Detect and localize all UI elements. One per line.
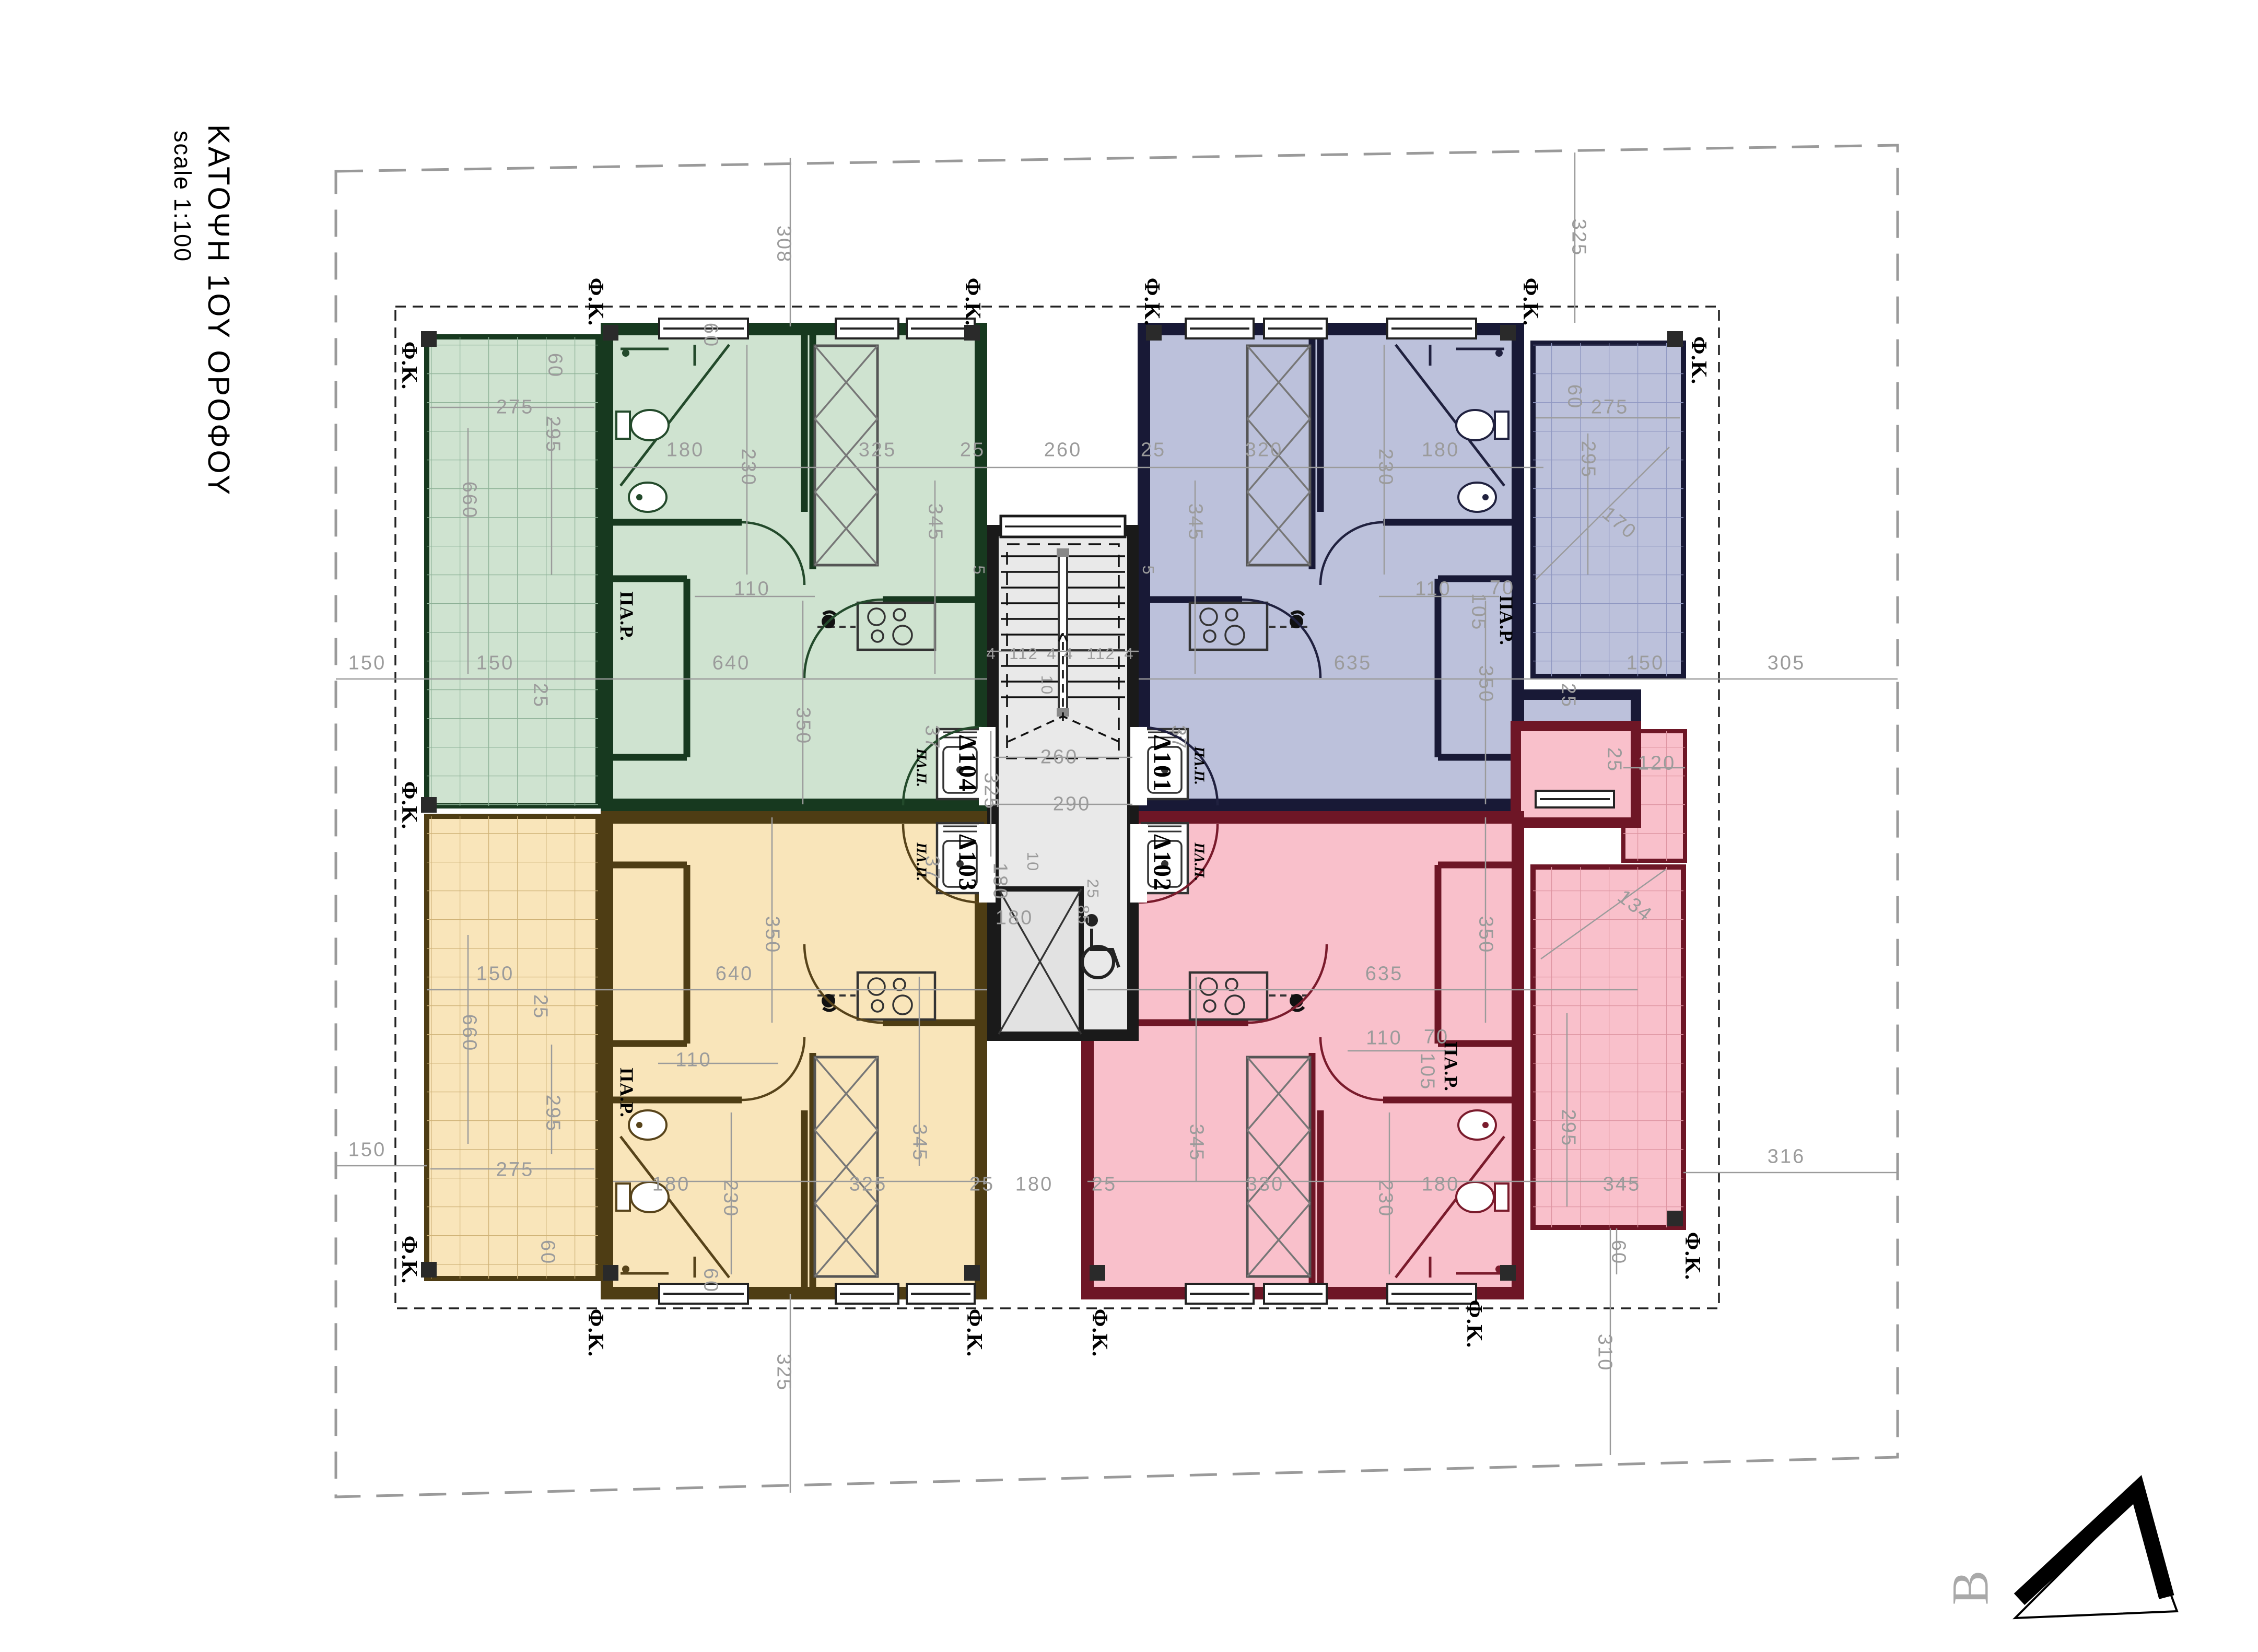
dim-label: 70 — [1490, 577, 1515, 600]
north-label: B — [1940, 1571, 2000, 1606]
apartment-label-d104: Δ104 — [953, 735, 982, 792]
dim-label: 110 — [1415, 578, 1452, 601]
dim-label: 230 — [719, 1180, 742, 1217]
dim-label: 10 — [1037, 675, 1056, 695]
dim-label: 60 — [544, 353, 566, 378]
dim-label: 25 — [1603, 747, 1625, 772]
dim-label: 25 — [529, 994, 552, 1020]
dim-label: 25 — [1141, 439, 1166, 462]
dim-label: 120 — [1638, 753, 1676, 775]
dim-label: 150 — [348, 652, 386, 675]
apartment-label-d103: Δ103 — [953, 834, 982, 892]
dim-label: 640 — [716, 963, 753, 986]
floor-plan-sheet: ΚΑΤΟΨΗ 1ΟΥ ΟΡΟΦΟΥ scale 1:100 Δ104 Δ101 … — [0, 0, 2258, 1652]
dim-label: 25 — [1092, 1174, 1117, 1196]
title-block: ΚΑΤΟΨΗ 1ΟΥ ΟΡΟΦΟΥ scale 1:100 — [169, 124, 236, 594]
dim-label: 170 — [1597, 502, 1641, 544]
dim-label: 275 — [1591, 396, 1629, 419]
dim-label: 350 — [792, 707, 814, 745]
dim-label: 150 — [476, 652, 514, 675]
dim-label: 640 — [712, 652, 750, 675]
dim-label: 260 — [1040, 746, 1078, 769]
dim-label: 5 — [1139, 565, 1157, 575]
dim-label: 5 — [969, 565, 988, 575]
dim-label: 134 — [1613, 886, 1657, 927]
dim-label: 275 — [496, 1159, 534, 1181]
dim-label: 635 — [1365, 963, 1403, 986]
dim-label: 112 — [1086, 645, 1115, 663]
apartment-label-d102: Δ102 — [1148, 834, 1177, 892]
dim-label: 105 — [1416, 1053, 1438, 1091]
fk-label: Φ.Κ. — [396, 1236, 422, 1284]
dim-label: 25 — [1557, 683, 1580, 708]
dim-label: 4 — [1124, 645, 1134, 663]
par-label: ΠΑ.Ρ. — [1495, 595, 1517, 646]
dim-label: 230 — [1374, 449, 1397, 486]
fk-label: Φ.Κ. — [960, 278, 985, 326]
dim-label: 290 — [1053, 793, 1091, 816]
plp-label: ΠΛ.Π. — [1191, 842, 1208, 881]
dim-label: 110 — [1366, 1027, 1402, 1050]
dim-label: 350 — [761, 916, 783, 954]
dim-label: 112 — [1009, 645, 1038, 663]
dim-label: 4 — [1047, 645, 1057, 663]
dim-label: 260 — [1044, 439, 1082, 462]
dim-label: 4 — [1063, 645, 1073, 663]
fk-label: Φ.Κ. — [396, 342, 422, 390]
dim-label: 660 — [458, 482, 481, 519]
dim-label: 180 — [1422, 1174, 1459, 1196]
par-label: ΠΑ.Ρ. — [1440, 1041, 1462, 1092]
page-title: ΚΑΤΟΨΗ 1ΟΥ ΟΡΟΦΟΥ — [201, 124, 236, 594]
dim-label: 70 — [1424, 1026, 1449, 1049]
dim-label: 150 — [1627, 652, 1664, 675]
dim-label: 230 — [1374, 1180, 1397, 1217]
dim-label: 345 — [1184, 503, 1207, 541]
fk-label: Φ.Κ. — [1686, 336, 1711, 385]
dim-label: 660 — [458, 1014, 481, 1052]
dim-label: 305 — [1768, 652, 1805, 675]
dim-label: 4 — [986, 645, 996, 663]
dim-label: 60 — [1563, 384, 1586, 409]
dim-label: 180 — [1015, 1174, 1053, 1196]
dim-label: 316 — [1768, 1146, 1805, 1168]
fk-label: Φ.Κ. — [1680, 1232, 1705, 1281]
dim-label: 325 — [980, 772, 1002, 810]
dim-label: 325 — [1567, 219, 1590, 256]
fk-label: Φ.Κ. — [396, 781, 422, 830]
dim-label: 25 — [529, 683, 552, 708]
dim-label: 25 — [969, 1174, 995, 1196]
fk-label: Φ.Κ. — [962, 1309, 987, 1357]
dim-label: 320 — [1245, 439, 1283, 462]
dim-label: 37 — [1167, 725, 1190, 750]
dim-label: 37 — [921, 856, 943, 881]
dim-label: 345 — [924, 503, 946, 541]
dim-label: 60 — [699, 1268, 722, 1293]
dim-label: 275 — [496, 396, 534, 419]
dim-label: 310 — [1594, 1334, 1616, 1372]
dim-label: 350 — [1475, 916, 1497, 954]
dim-label: 180 — [666, 439, 704, 462]
dim-label: 295 — [542, 416, 564, 453]
dim-label: 345 — [908, 1124, 931, 1162]
fk-label: Φ.Κ. — [583, 278, 608, 326]
fk-label: Φ.Κ. — [583, 1309, 608, 1357]
dim-label: 60 — [536, 1240, 559, 1265]
dim-label: 635 — [1334, 652, 1372, 675]
dim-label: 25 — [960, 439, 985, 462]
dim-label: 295 — [1577, 441, 1599, 478]
dim-label: 180 — [1422, 439, 1459, 462]
dim-label: 150 — [348, 1139, 386, 1162]
dim-label: 85 — [1074, 905, 1093, 925]
dim-label: 180 — [996, 907, 1033, 930]
fk-label: Φ.Κ. — [1461, 1300, 1487, 1349]
dim-label: 295 — [1557, 1109, 1580, 1147]
dim-label: 110 — [675, 1049, 712, 1072]
dim-label: 110 — [734, 578, 770, 601]
fk-label: Φ.Κ. — [1087, 1309, 1112, 1357]
dim-label: 325 — [849, 1174, 887, 1196]
dim-label: 37 — [921, 725, 943, 750]
dim-label: 105 — [1467, 593, 1490, 631]
dim-label: 60 — [1607, 1240, 1630, 1265]
dim-label: 230 — [737, 449, 759, 486]
dim-label: 150 — [476, 963, 514, 986]
dim-label: 180 — [989, 863, 1011, 900]
par-label: ΠΑ.Ρ. — [616, 1068, 638, 1118]
dim-label: 295 — [542, 1095, 564, 1132]
dim-label: 325 — [859, 439, 896, 462]
annotation-layer: ΚΑΤΟΨΗ 1ΟΥ ΟΡΟΦΟΥ scale 1:100 Δ104 Δ101 … — [0, 0, 2258, 1652]
dim-label: 180 — [652, 1174, 690, 1196]
dim-label: 345 — [1603, 1174, 1641, 1196]
par-label: ΠΑ.Ρ. — [616, 591, 638, 641]
scale-label: scale 1:100 — [169, 131, 196, 594]
dim-label: 350 — [1475, 665, 1497, 703]
dim-label: 308 — [773, 226, 795, 263]
dim-label: 25 — [1083, 879, 1102, 899]
dim-label: 330 — [1246, 1174, 1284, 1196]
fk-label: Φ.Κ. — [1518, 278, 1543, 326]
plp-label: ΠΛ.Π. — [914, 748, 930, 787]
plp-label: ΠΛ.Π. — [1191, 746, 1208, 785]
dim-label: 345 — [1185, 1124, 1208, 1162]
dim-label: 60 — [699, 323, 722, 348]
dim-label: 325 — [773, 1354, 795, 1391]
fk-label: Φ.Κ. — [1139, 278, 1164, 326]
dim-label: 10 — [1023, 852, 1042, 872]
